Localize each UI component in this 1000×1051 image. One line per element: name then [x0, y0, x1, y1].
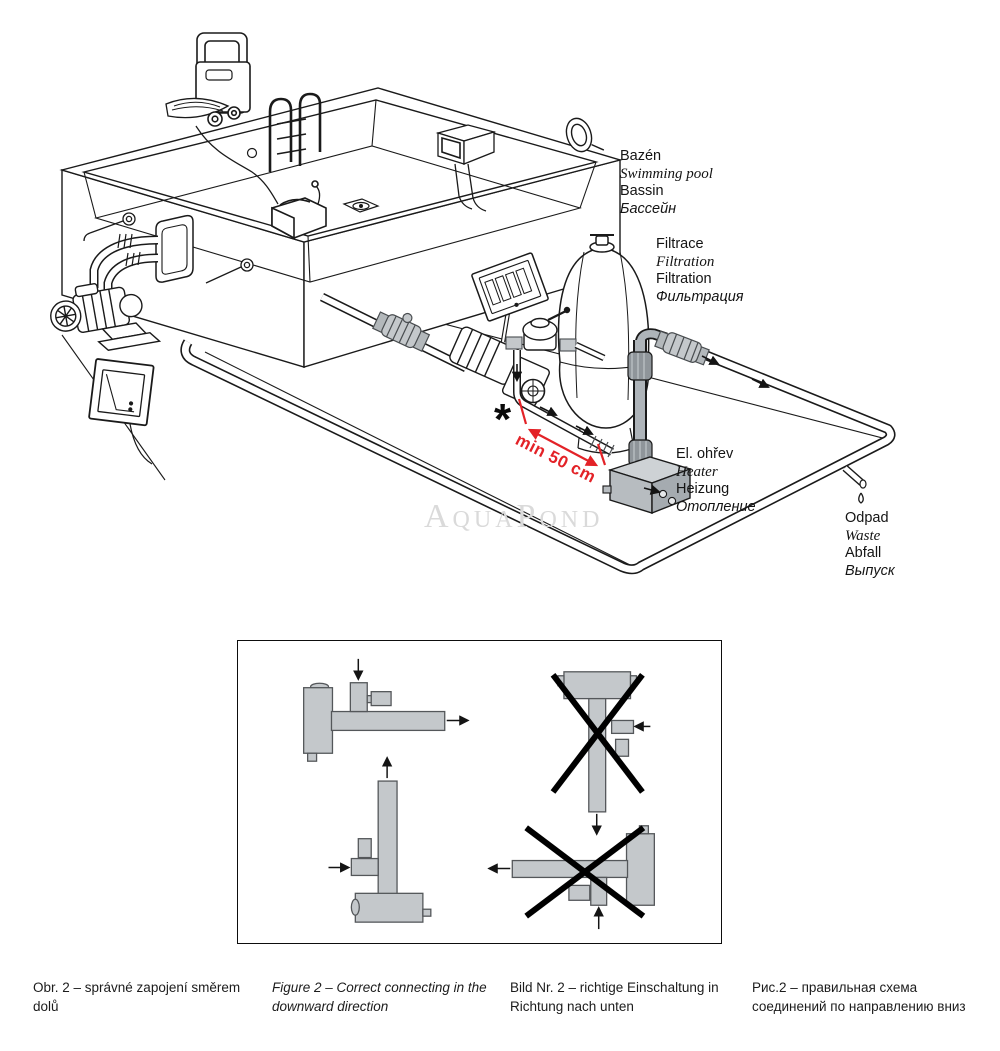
orientation-diagrams [238, 641, 721, 943]
label-pool-en: Swimming pool [620, 166, 713, 184]
label-heater-en: Heater [676, 464, 756, 482]
asterisk-marker: * [494, 398, 511, 442]
caption-english: Figure 2 – Correct connecting in the dow… [272, 978, 500, 1016]
label-pool-ru: Бассейн [620, 201, 713, 219]
label-waste-cs: Odpad [845, 510, 895, 528]
label-filtration-fr: Filtration [656, 271, 744, 289]
counter-current-faceplate [156, 216, 193, 283]
watermark: AquaPond [424, 498, 603, 536]
label-filtration-cs: Filtrace [656, 236, 744, 254]
label-waste-ru: Выпуск [845, 563, 895, 581]
figure-2-box [237, 640, 722, 944]
label-filtration-en: Filtration [656, 254, 744, 272]
heater-outlet-valve [654, 328, 710, 366]
correct-vertical-diagram [351, 781, 430, 922]
caption-german: Bild Nr. 2 – richtige Einschaltung in Ri… [510, 978, 742, 1016]
label-pool: Bazén Swimming pool Bassin Бассейн [620, 148, 713, 218]
label-waste: Odpad Waste Abfall Выпуск [845, 510, 895, 580]
label-heater-ru: Отопление [676, 499, 756, 517]
manual-page: AquaPond * min 50 cm Bazén Swimming pool… [0, 0, 1000, 1051]
wall-box [89, 359, 154, 426]
label-filtration: Filtrace Filtration Filtration Фильтраци… [656, 236, 744, 306]
label-waste-de: Abfall [845, 545, 895, 563]
correct-horizontal-diagram [304, 683, 445, 761]
caption-russian: Рис.2 – правильная схема соединений по н… [752, 978, 970, 1016]
label-waste-en: Waste [845, 528, 895, 546]
cleaning-trolley [166, 33, 250, 126]
waste-outlet [845, 468, 866, 503]
label-heater-de: Heizung [676, 481, 756, 499]
water-drop-icon [859, 493, 864, 503]
caption-czech: Obr. 2 – správné zapojení směrem dolů [33, 978, 265, 1016]
label-heater: El. ohřev Heater Heizung Отопление [676, 446, 756, 516]
hose-float [248, 149, 257, 158]
label-pool-cs: Bazén [620, 148, 713, 166]
label-heater-cs: El. ohřev [676, 446, 756, 464]
label-filtration-ru: Фильтрация [656, 289, 744, 307]
label-pool-fr: Bassin [620, 183, 713, 201]
